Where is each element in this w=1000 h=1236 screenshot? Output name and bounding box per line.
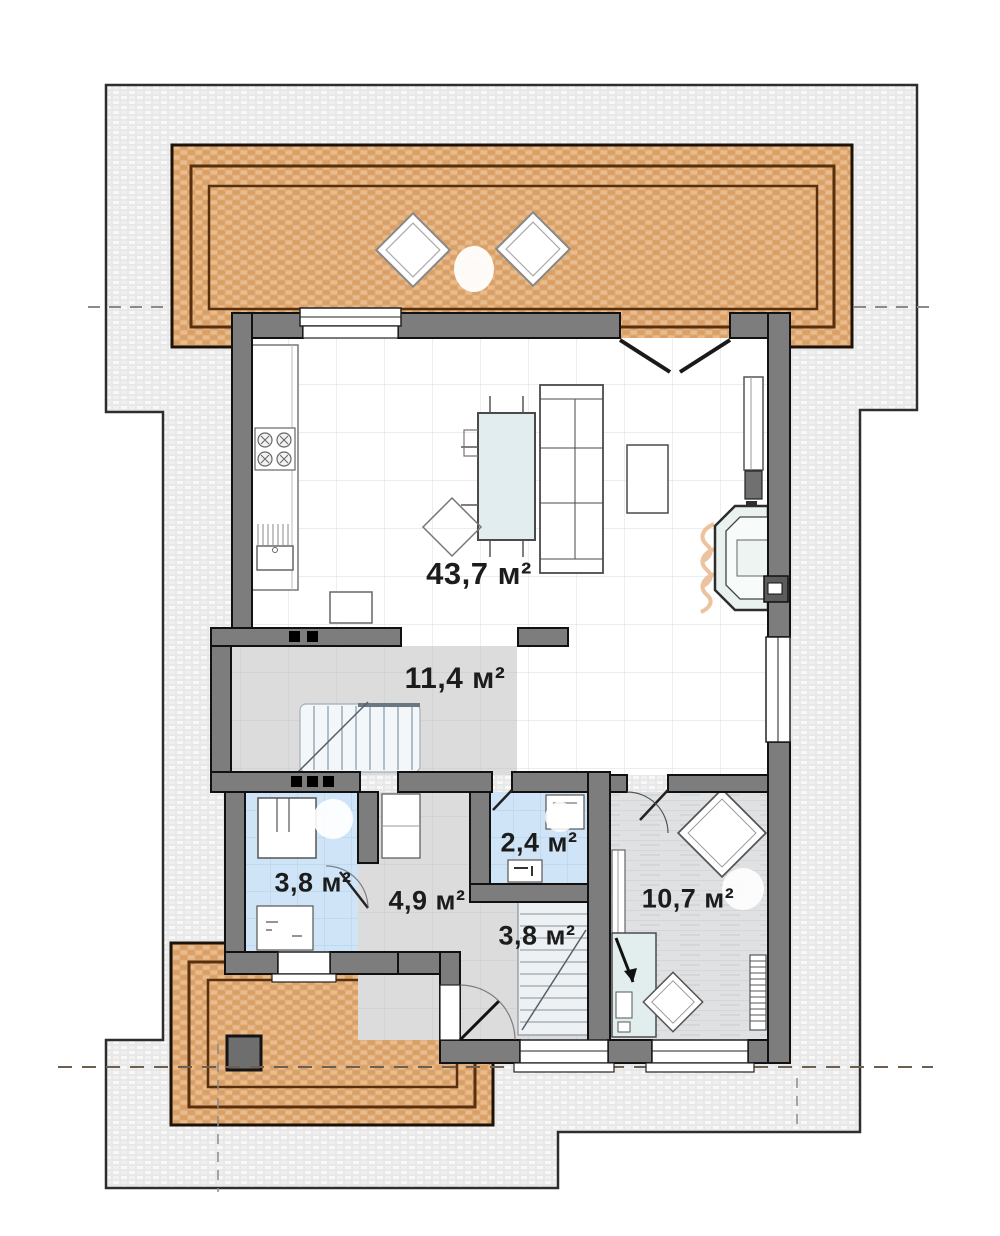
window — [514, 1040, 614, 1072]
radiator — [750, 955, 766, 1030]
staircase-down — [518, 893, 590, 1035]
room-label-living: 43,7 м² — [426, 556, 532, 592]
floor-plan-drawing — [0, 0, 1000, 1236]
window — [646, 1040, 754, 1072]
kitchen-island — [330, 592, 372, 623]
closet — [382, 794, 420, 858]
staircase-up — [298, 702, 420, 772]
wc-toilet — [508, 860, 542, 882]
window — [766, 637, 790, 742]
hob — [255, 428, 295, 470]
tv-bench — [744, 377, 763, 511]
room-label-staircase: 3,8 м² — [499, 921, 576, 952]
bathroom-sink — [258, 798, 316, 858]
room-label-corridor: 4,9 м² — [389, 886, 466, 917]
window — [300, 308, 401, 338]
room-label-bedroom: 10,7 м² — [642, 884, 735, 915]
room-label-hall: 11,4 м² — [405, 662, 506, 696]
window — [272, 952, 336, 982]
sofa — [540, 385, 603, 573]
room-label-bathroom: 3,8 м² — [275, 868, 352, 899]
terrace-table — [454, 246, 494, 292]
fireplace-flue — [764, 576, 788, 602]
porch-column — [227, 1036, 261, 1070]
coffee-table — [627, 445, 668, 513]
floor-plan-canvas: 43,7 м² 11,4 м² 3,8 м² 4,9 м² 2,4 м² 3,8… — [0, 0, 1000, 1236]
room-label-wc: 2,4 м² — [501, 828, 578, 859]
wardrobe — [612, 850, 625, 934]
bathroom-toilet — [257, 906, 313, 950]
ceiling-light — [313, 799, 353, 839]
